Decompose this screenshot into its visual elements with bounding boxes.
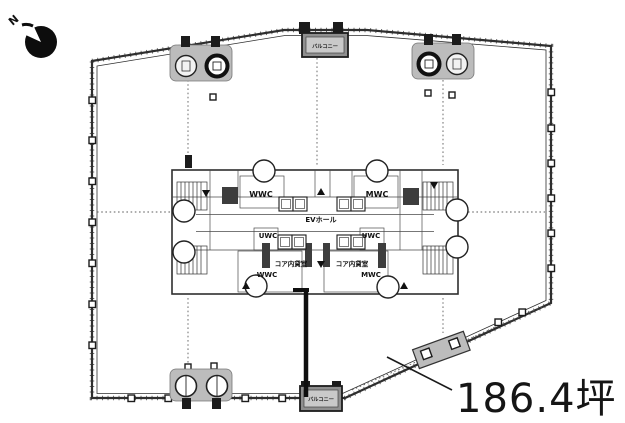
floor-plan-drawing: N bbox=[0, 0, 625, 423]
rental-left-label: コア内貸室 bbox=[275, 259, 308, 268]
round-column bbox=[176, 56, 197, 77]
building-core: WWC MWC EVホール UWC UWC コア内貸室 コア内貸室 WWC MW… bbox=[172, 155, 468, 298]
wwc-bottom-label: WWC bbox=[257, 271, 278, 279]
north-label: N bbox=[6, 12, 21, 28]
round-column bbox=[447, 54, 468, 75]
side-column-right-lower bbox=[446, 236, 468, 258]
wc-circle-bottom-right bbox=[377, 276, 399, 298]
north-compass-icon: N bbox=[6, 12, 57, 58]
wc-circle-top-left bbox=[253, 160, 275, 182]
balcony-top: バルコニー bbox=[299, 22, 348, 57]
wall-end-stub bbox=[185, 155, 192, 168]
side-column-left-upper bbox=[173, 200, 195, 222]
side-column-right-upper bbox=[446, 199, 468, 221]
area-label: 186.4坪 bbox=[456, 376, 617, 422]
wc-circle-top-right bbox=[366, 160, 388, 182]
floor-plan-page: N bbox=[0, 0, 625, 423]
wwc-top-label: WWC bbox=[249, 190, 273, 199]
uwc-right-label: UWC bbox=[362, 232, 381, 240]
balcony-top-label: バルコニー bbox=[312, 43, 338, 50]
side-column-left-lower bbox=[173, 241, 195, 263]
balcony-bottom-label: バルコニー bbox=[308, 396, 334, 403]
tower-bottom-left bbox=[170, 369, 232, 409]
mwc-top-label: MWC bbox=[366, 190, 389, 199]
uwc-left-label: UWC bbox=[259, 232, 278, 240]
ev-hall-label: EVホール bbox=[305, 216, 336, 224]
rental-right-label: コア内貸室 bbox=[336, 259, 369, 268]
mwc-bottom-label: MWC bbox=[361, 271, 381, 279]
compass-crescent bbox=[22, 24, 33, 26]
